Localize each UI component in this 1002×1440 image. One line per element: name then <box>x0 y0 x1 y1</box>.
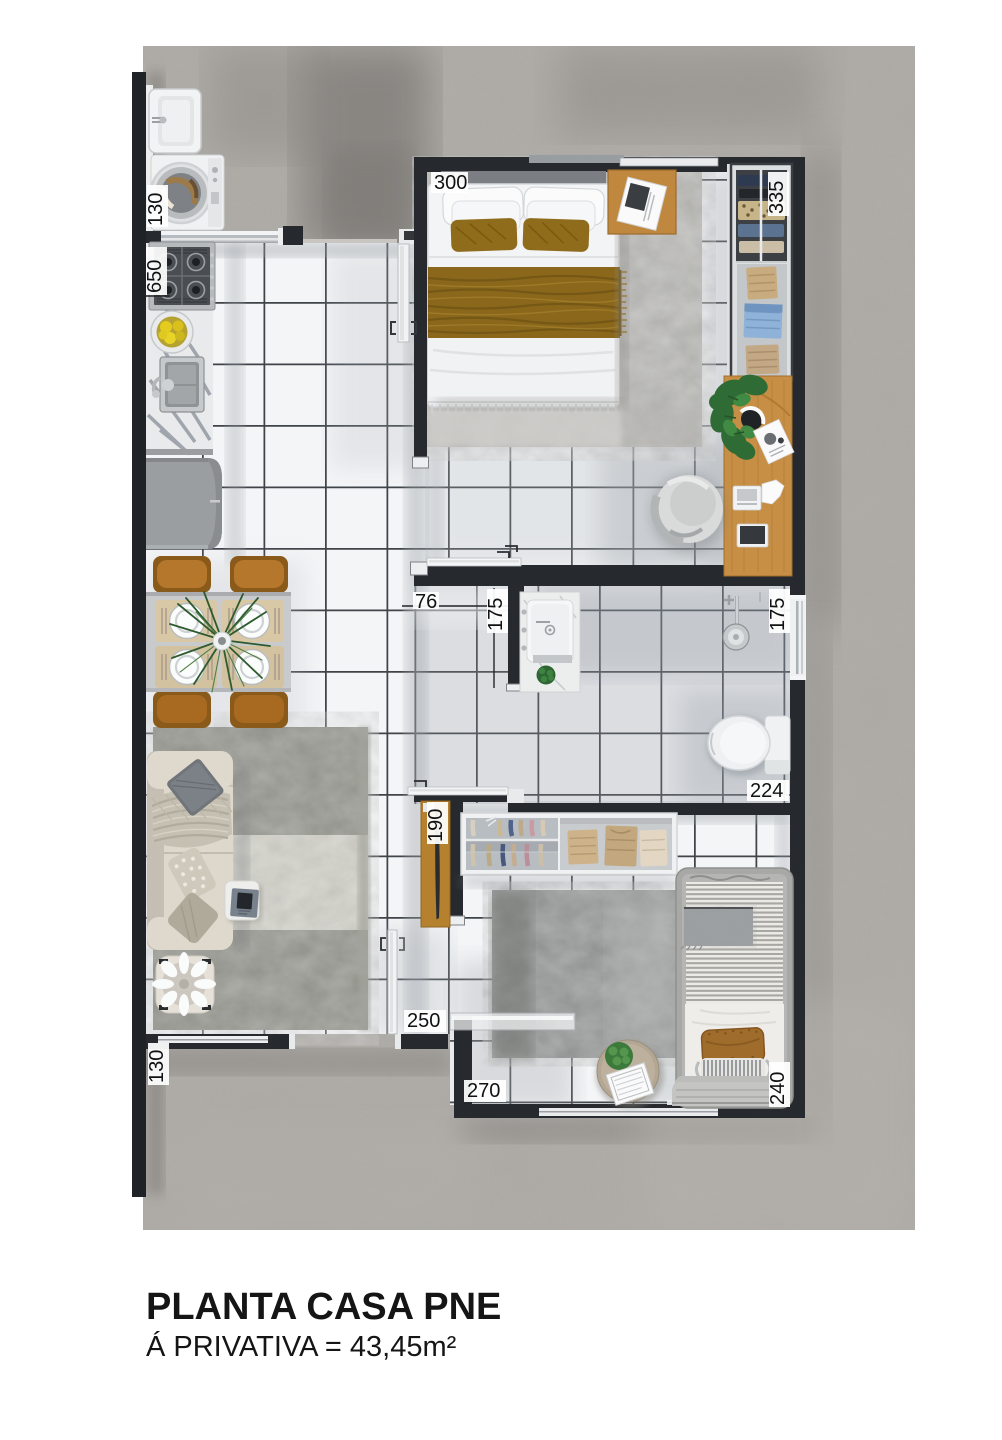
svg-text:240: 240 <box>767 1072 789 1105</box>
svg-text:224: 224 <box>750 780 783 802</box>
svg-text:PLANTA CASA PNE: PLANTA CASA PNE <box>146 1286 501 1328</box>
svg-text:270: 270 <box>467 1080 500 1102</box>
svg-text:250: 250 <box>407 1010 440 1032</box>
svg-text:130: 130 <box>145 193 167 226</box>
svg-text:175: 175 <box>767 598 789 631</box>
svg-text:175: 175 <box>485 598 507 631</box>
svg-text:335: 335 <box>766 181 788 214</box>
svg-text:Á PRIVATIVA = 43,45m²: Á PRIVATIVA = 43,45m² <box>146 1330 457 1363</box>
svg-text:76: 76 <box>415 591 437 613</box>
svg-text:300: 300 <box>434 172 467 194</box>
svg-text:650: 650 <box>144 260 166 293</box>
svg-text:190: 190 <box>425 809 447 842</box>
svg-text:130: 130 <box>146 1050 168 1083</box>
